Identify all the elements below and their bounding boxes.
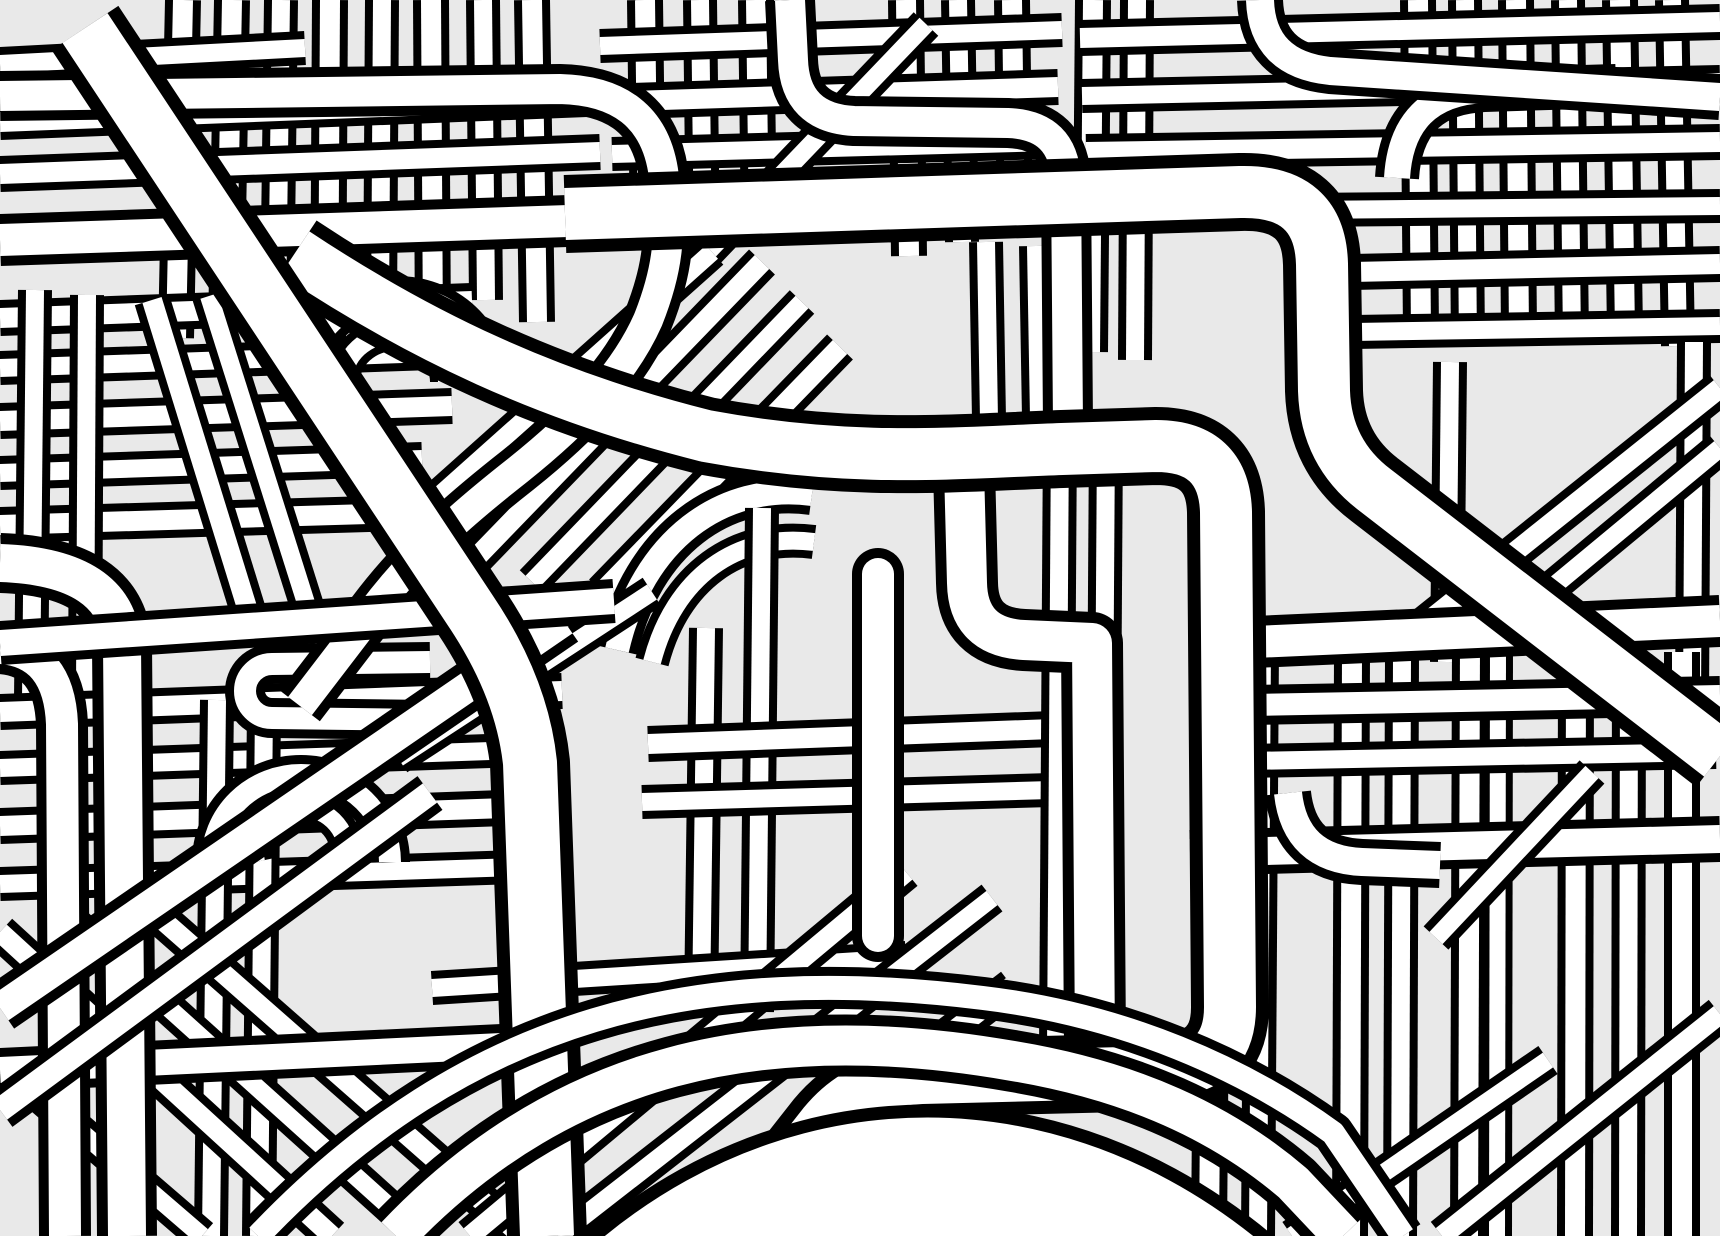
pipe-73 xyxy=(757,508,762,1012)
pipe-95 xyxy=(1190,839,1720,853)
pipe-28 xyxy=(1568,0,1572,340)
pipes-illustration xyxy=(0,0,1720,1236)
pipes-canvas xyxy=(0,0,1720,1236)
pipe-36 xyxy=(1354,326,1720,332)
pipe-26 xyxy=(1465,0,1468,346)
pipe-94 xyxy=(1196,752,1716,762)
pipe-109 xyxy=(1233,621,1720,643)
pipe-82 xyxy=(1056,432,1060,1050)
pipe-89 xyxy=(1497,646,1498,1236)
pipe-22 xyxy=(1036,246,1039,418)
pipe-35 xyxy=(1352,264,1720,272)
pipe-117 xyxy=(570,1218,1292,1236)
pipe-21 xyxy=(986,242,989,420)
pipe-30 xyxy=(1672,0,1678,346)
pipe-88 xyxy=(1468,642,1470,1236)
